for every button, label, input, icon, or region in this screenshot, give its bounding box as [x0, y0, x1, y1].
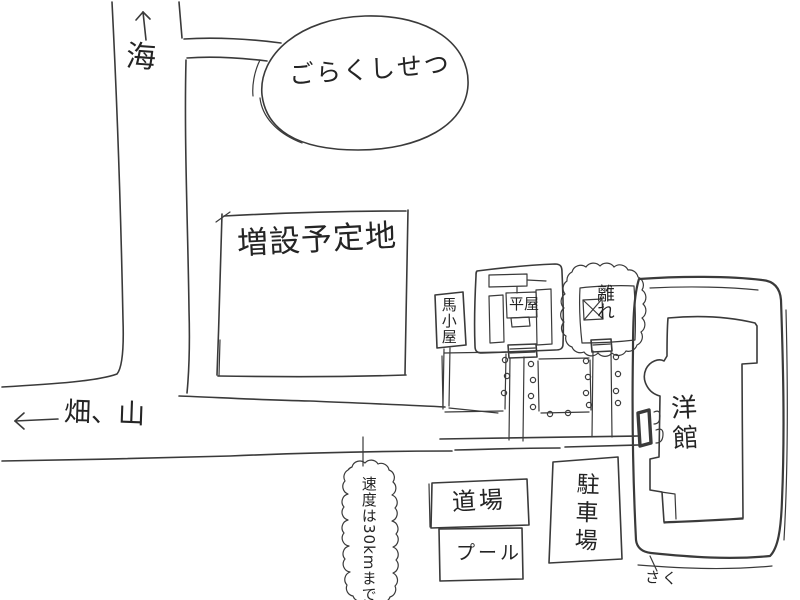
parking-label: 駐車場	[571, 472, 598, 557]
sea-arrow-icon	[136, 12, 150, 40]
garden-paths	[442, 351, 621, 441]
sea-label: 海	[125, 41, 157, 75]
estate-gate-icon	[638, 410, 651, 446]
dojo-label: 道場	[451, 488, 506, 516]
annex-label: 離れ	[594, 284, 613, 320]
speed-limit-sign-label: 速度は30kmまで	[360, 476, 376, 600]
stepping-stones	[501, 354, 620, 416]
fence-label: さく	[645, 570, 680, 588]
hand-drawn-map: 海 ごらくしせつ 増設予定地 馬小屋 平屋 離れ 洋館 畑、山 速度は30kmま…	[0, 0, 800, 600]
fields-arrow-icon	[15, 413, 58, 429]
fields-mountain-label: 畑、山	[64, 399, 146, 430]
western-house-outline	[633, 277, 788, 571]
stable-sign-label: 馬小屋	[440, 297, 456, 345]
pool-label: プール	[456, 544, 522, 564]
expansion-site-label: 増設予定地	[236, 220, 397, 261]
main-house-label: 平屋	[509, 297, 539, 313]
map-sketch-canvas	[0, 0, 800, 600]
western-house-label: 洋館	[666, 393, 696, 454]
